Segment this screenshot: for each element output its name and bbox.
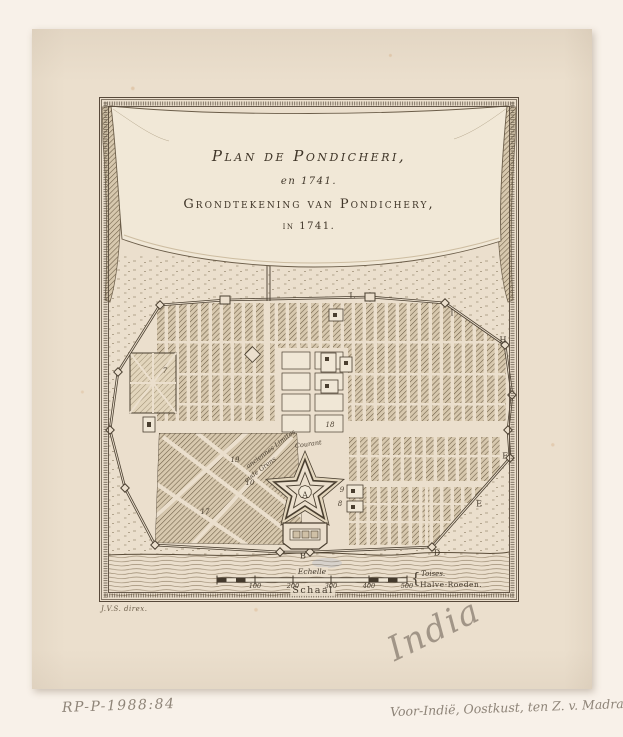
pencil-inscription-india: India	[381, 590, 487, 669]
blue-stamp	[312, 558, 342, 568]
region-note-handwritten: Voor-Indië, Oostkust, ten Z. v. Madras	[390, 696, 623, 719]
engraved-plate: Plan de Pondicheri, en 1741. Grondtekeni…	[99, 97, 519, 602]
accession-number-handwritten: RP-P-1988:84	[62, 696, 176, 716]
engraver-signature: J.V.S. direx.	[101, 605, 147, 613]
sea	[109, 552, 509, 596]
citadel-hornwork	[283, 523, 327, 549]
map-engraving	[99, 97, 519, 602]
scanned-print-page: { "plate": { "title_line1": "Plan de Pon…	[0, 0, 623, 737]
title-banner	[111, 106, 507, 267]
